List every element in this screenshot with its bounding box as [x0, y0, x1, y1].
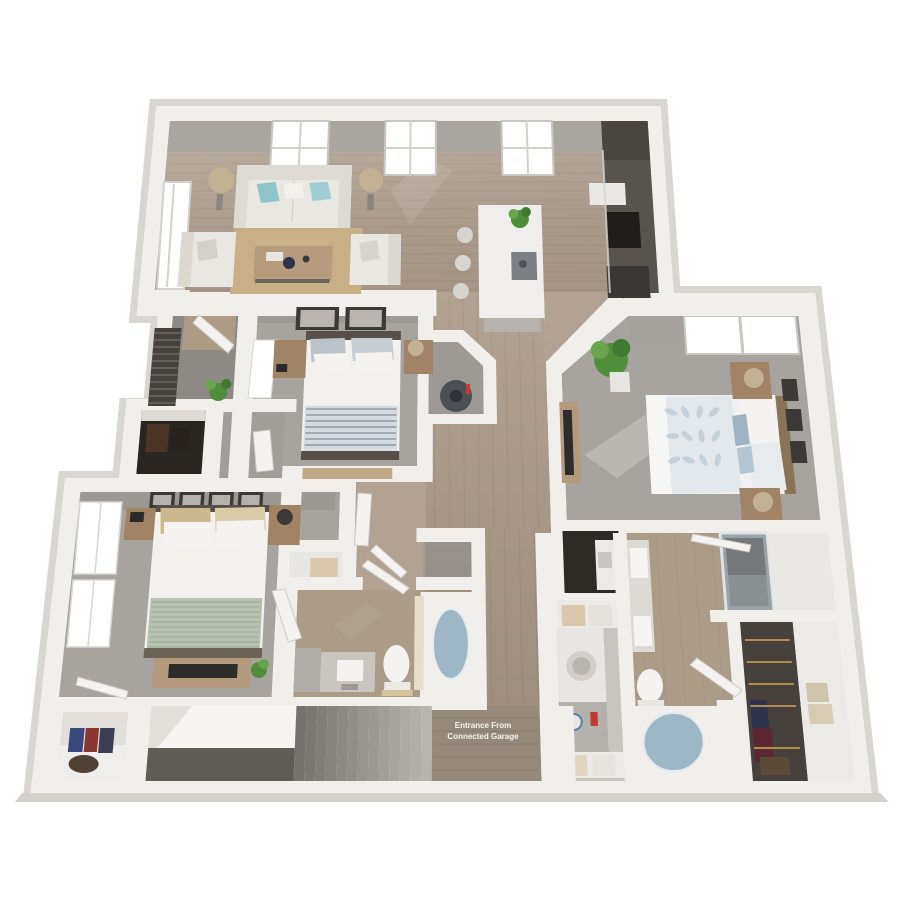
svg-text:Connected Garage: Connected Garage [447, 732, 519, 741]
svg-text:Entrance From: Entrance From [455, 721, 511, 730]
